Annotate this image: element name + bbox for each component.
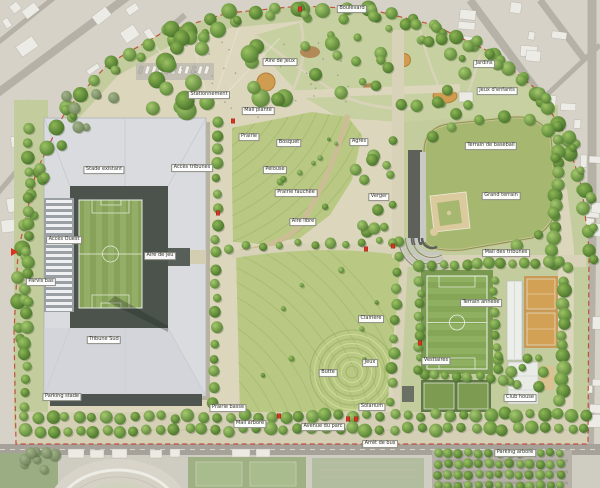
tree bbox=[413, 276, 423, 286]
tree bbox=[87, 413, 96, 422]
tree bbox=[23, 362, 32, 371]
tree bbox=[462, 372, 472, 382]
tree bbox=[299, 283, 303, 287]
tree bbox=[294, 239, 301, 246]
sports-cluster bbox=[402, 270, 558, 412]
tree bbox=[209, 306, 221, 318]
tree bbox=[580, 410, 592, 422]
tree bbox=[144, 410, 155, 421]
tree bbox=[464, 448, 472, 456]
tree bbox=[346, 421, 358, 433]
tree bbox=[525, 409, 534, 418]
tree bbox=[484, 449, 492, 457]
tree bbox=[556, 459, 565, 468]
tree bbox=[123, 48, 136, 61]
label-terrain-annexe: Terrain annexe bbox=[460, 299, 502, 307]
tree bbox=[281, 306, 286, 311]
tree bbox=[23, 297, 33, 307]
tree bbox=[513, 422, 524, 433]
tree bbox=[394, 252, 403, 261]
tree bbox=[306, 410, 319, 423]
tree bbox=[212, 220, 224, 232]
tree bbox=[423, 36, 434, 47]
tree bbox=[443, 448, 453, 458]
tree bbox=[357, 220, 368, 231]
tree bbox=[26, 447, 37, 458]
city-building bbox=[580, 155, 587, 168]
tree bbox=[386, 398, 395, 407]
tree bbox=[195, 42, 209, 56]
tree bbox=[474, 115, 484, 125]
tree bbox=[212, 413, 222, 423]
tree bbox=[128, 426, 138, 436]
tree bbox=[440, 260, 448, 268]
tree bbox=[404, 410, 413, 419]
label-terrain-baseball: Terrain de baseball bbox=[465, 142, 517, 150]
small-hut bbox=[402, 386, 414, 402]
tree bbox=[472, 424, 482, 434]
city-building bbox=[458, 21, 475, 30]
tree bbox=[25, 178, 35, 188]
tree bbox=[545, 470, 553, 478]
grandstand-upper bbox=[420, 152, 426, 242]
tree bbox=[556, 331, 566, 341]
tree bbox=[20, 388, 29, 397]
tree bbox=[463, 458, 473, 468]
label-acces-ouest: Accès Ouest bbox=[46, 236, 82, 244]
tree bbox=[19, 412, 29, 422]
tree bbox=[498, 375, 509, 386]
label-bosquet: Bosquet bbox=[276, 139, 301, 147]
tree bbox=[210, 425, 220, 435]
tree bbox=[100, 411, 113, 424]
tree bbox=[358, 239, 366, 247]
label-prairie-fauchee: Prairie fauchée bbox=[275, 189, 318, 197]
tree bbox=[376, 55, 385, 64]
tree bbox=[41, 447, 52, 458]
tree bbox=[577, 166, 585, 174]
tree bbox=[288, 355, 294, 361]
tree bbox=[143, 38, 155, 50]
tree bbox=[86, 426, 98, 438]
tree bbox=[48, 426, 60, 438]
tree bbox=[267, 412, 278, 423]
tree bbox=[350, 164, 362, 176]
tree bbox=[491, 331, 500, 340]
entrance-marker bbox=[364, 247, 368, 251]
tree bbox=[558, 318, 570, 330]
label-verger: Verger bbox=[368, 193, 389, 201]
tree bbox=[493, 364, 503, 374]
tree bbox=[524, 459, 534, 469]
tree bbox=[553, 394, 565, 406]
tree bbox=[538, 408, 552, 422]
tree bbox=[462, 259, 473, 270]
tree bbox=[210, 340, 219, 349]
tree bbox=[541, 123, 555, 137]
tree bbox=[359, 78, 366, 85]
tree bbox=[332, 51, 342, 61]
tree bbox=[473, 449, 482, 458]
label-butte: Butte bbox=[319, 369, 338, 377]
tree bbox=[11, 271, 24, 284]
tree bbox=[410, 100, 422, 112]
label-arret-bus: Arrêt de bus bbox=[362, 440, 398, 448]
tree bbox=[318, 408, 331, 421]
east-apron bbox=[190, 250, 206, 264]
label-mail-tribunes: Mail des tribunes bbox=[482, 249, 530, 257]
tree bbox=[415, 331, 425, 341]
label-mail-plante: Mail planté bbox=[242, 107, 275, 115]
tree bbox=[63, 427, 72, 436]
tree bbox=[471, 35, 482, 46]
tree bbox=[249, 6, 263, 20]
tree bbox=[213, 294, 221, 302]
tree bbox=[552, 178, 564, 190]
tree bbox=[493, 343, 501, 351]
tree bbox=[443, 470, 452, 479]
tree bbox=[562, 130, 576, 144]
tree bbox=[495, 258, 506, 269]
tree bbox=[19, 423, 33, 437]
tree bbox=[444, 47, 457, 60]
tree bbox=[21, 321, 34, 334]
tree bbox=[130, 412, 140, 422]
city-building bbox=[589, 156, 600, 164]
tree bbox=[484, 408, 498, 422]
tree bbox=[436, 33, 448, 45]
label-stade-existant: Stade existant bbox=[83, 166, 124, 174]
tree bbox=[322, 203, 328, 209]
tree bbox=[388, 378, 398, 388]
tree bbox=[508, 259, 517, 268]
tree bbox=[390, 315, 400, 325]
label-stationnement: Stationnement bbox=[188, 91, 230, 99]
tree bbox=[449, 30, 463, 44]
tree bbox=[427, 260, 437, 270]
mini-pitch bbox=[424, 383, 454, 409]
tree bbox=[325, 238, 336, 249]
tree bbox=[211, 157, 223, 169]
label-tribune-sud: Tribune Sud bbox=[87, 336, 121, 344]
tree bbox=[418, 423, 427, 432]
tree bbox=[22, 256, 35, 269]
tree bbox=[57, 140, 67, 150]
tree bbox=[545, 244, 558, 257]
tree bbox=[483, 421, 497, 435]
tree bbox=[61, 91, 72, 102]
tree bbox=[453, 449, 462, 458]
tree bbox=[386, 170, 394, 178]
tree bbox=[359, 326, 364, 331]
tree bbox=[91, 89, 101, 99]
tree bbox=[212, 174, 220, 182]
tree bbox=[195, 423, 207, 435]
tree bbox=[213, 190, 222, 199]
tree bbox=[494, 351, 502, 359]
tree bbox=[300, 41, 310, 51]
tree bbox=[161, 57, 176, 72]
tree bbox=[586, 192, 596, 202]
tree bbox=[391, 284, 401, 294]
tree bbox=[311, 241, 319, 249]
tree bbox=[372, 204, 383, 215]
tree bbox=[212, 143, 223, 154]
tree bbox=[198, 412, 209, 423]
tree bbox=[103, 425, 113, 435]
tree bbox=[429, 424, 443, 438]
label-club-house: Club house bbox=[504, 394, 537, 402]
city-building bbox=[510, 2, 522, 14]
tree bbox=[49, 120, 65, 136]
tree bbox=[392, 268, 401, 277]
tree bbox=[376, 237, 383, 244]
tree bbox=[210, 22, 226, 38]
tree bbox=[156, 410, 165, 419]
tree bbox=[241, 45, 259, 63]
tree bbox=[396, 99, 407, 110]
tree bbox=[388, 347, 400, 359]
tree bbox=[76, 426, 86, 436]
tree bbox=[170, 41, 184, 55]
tree bbox=[375, 425, 384, 434]
tree bbox=[342, 241, 349, 248]
tree bbox=[413, 260, 425, 272]
tree bbox=[39, 141, 54, 156]
tree bbox=[359, 175, 369, 185]
tree bbox=[24, 167, 33, 176]
tree bbox=[505, 469, 514, 478]
tree bbox=[88, 75, 99, 86]
tree bbox=[454, 460, 463, 469]
tree bbox=[413, 365, 422, 374]
tree bbox=[515, 471, 523, 479]
tree bbox=[505, 366, 517, 378]
tree bbox=[385, 7, 397, 19]
tree bbox=[35, 426, 47, 438]
tree bbox=[391, 299, 402, 310]
tree bbox=[430, 408, 441, 419]
tree bbox=[156, 425, 166, 435]
tree bbox=[441, 371, 449, 379]
label-grand-terrain: Grand terrain bbox=[482, 192, 521, 200]
tree bbox=[434, 460, 443, 469]
tree bbox=[114, 426, 126, 438]
tree bbox=[23, 138, 32, 147]
tree bbox=[382, 62, 393, 73]
tree bbox=[459, 410, 468, 419]
tree bbox=[333, 409, 343, 419]
tree bbox=[569, 425, 578, 434]
tree bbox=[498, 110, 511, 123]
tree bbox=[198, 32, 209, 43]
tree bbox=[224, 244, 233, 253]
tree bbox=[362, 410, 371, 419]
tree bbox=[483, 257, 495, 269]
tree bbox=[442, 85, 453, 96]
city-building bbox=[525, 50, 541, 62]
tree bbox=[450, 261, 460, 271]
tree bbox=[40, 172, 50, 182]
tree bbox=[474, 459, 483, 468]
tree bbox=[546, 448, 554, 456]
tree bbox=[533, 381, 544, 392]
tree bbox=[417, 290, 425, 298]
city-building bbox=[592, 317, 600, 330]
tree bbox=[21, 247, 31, 257]
tree bbox=[21, 375, 30, 384]
tree bbox=[565, 409, 579, 423]
tree bbox=[447, 122, 457, 132]
tree bbox=[541, 93, 551, 103]
tree bbox=[297, 170, 303, 176]
tree bbox=[315, 3, 330, 18]
tree bbox=[375, 412, 384, 421]
tree bbox=[429, 370, 439, 380]
tree bbox=[23, 206, 34, 217]
tree bbox=[311, 161, 316, 166]
tree bbox=[114, 413, 126, 425]
tree bbox=[458, 67, 471, 80]
tree bbox=[543, 256, 555, 268]
tree bbox=[554, 372, 568, 386]
tree bbox=[23, 123, 34, 134]
tree bbox=[351, 56, 361, 66]
tree bbox=[210, 355, 219, 364]
pitchers-mound bbox=[447, 211, 451, 215]
tree bbox=[22, 218, 34, 230]
tree bbox=[380, 223, 389, 232]
tree bbox=[212, 117, 223, 128]
tree bbox=[210, 246, 221, 257]
tree bbox=[516, 460, 524, 468]
tree bbox=[569, 144, 577, 152]
tree bbox=[20, 307, 32, 319]
tree bbox=[18, 348, 30, 360]
tree bbox=[504, 458, 514, 468]
tree bbox=[576, 201, 590, 215]
entrance-marker bbox=[418, 341, 422, 345]
label-solarium: Solarium bbox=[358, 403, 385, 411]
tree bbox=[385, 25, 392, 32]
label-parvis-bas: Parvis bas bbox=[26, 278, 56, 286]
tree bbox=[212, 131, 223, 142]
tree bbox=[108, 92, 119, 103]
tree bbox=[325, 36, 340, 51]
tree bbox=[136, 52, 145, 61]
tree bbox=[548, 207, 559, 218]
tree bbox=[459, 55, 466, 62]
entrance-marker bbox=[298, 7, 302, 11]
tree bbox=[490, 319, 501, 330]
tree bbox=[556, 449, 564, 457]
tree bbox=[554, 256, 565, 267]
tree bbox=[589, 255, 598, 264]
tree bbox=[450, 108, 462, 120]
tree bbox=[485, 471, 493, 479]
label-acces-tribunes: Accès tribunes bbox=[171, 164, 213, 172]
tree bbox=[390, 409, 400, 419]
label-parking-arbore: Parking arboré bbox=[494, 449, 536, 457]
city-building bbox=[561, 103, 576, 111]
tree bbox=[185, 74, 202, 91]
tree bbox=[210, 265, 221, 276]
label-aire-jeux-ouest: Aire de jeux bbox=[263, 58, 298, 66]
label-prairie-basse: Prairie basse bbox=[209, 404, 246, 412]
tree bbox=[366, 154, 378, 166]
tree bbox=[463, 100, 473, 110]
label-jeux: Jeux bbox=[362, 359, 378, 367]
tree bbox=[23, 192, 34, 203]
tree bbox=[523, 353, 533, 363]
tree bbox=[579, 424, 588, 433]
tree bbox=[368, 222, 380, 234]
city-building bbox=[459, 9, 476, 20]
tree bbox=[280, 176, 286, 182]
tree bbox=[385, 362, 397, 374]
label-jardins: Jardins bbox=[473, 60, 495, 68]
tree bbox=[293, 411, 304, 422]
mini-pitch bbox=[458, 383, 488, 409]
city-building bbox=[590, 404, 600, 413]
city-building bbox=[574, 120, 581, 129]
tree bbox=[471, 258, 482, 269]
tree bbox=[540, 422, 551, 433]
tree bbox=[538, 367, 549, 378]
tree bbox=[469, 409, 482, 422]
tree bbox=[301, 10, 309, 18]
tree bbox=[371, 80, 382, 91]
tree bbox=[242, 241, 251, 250]
entrance-marker bbox=[277, 414, 281, 418]
tree bbox=[334, 86, 347, 99]
label-agres: Agrès bbox=[349, 138, 368, 146]
tree bbox=[552, 408, 563, 419]
tree bbox=[509, 409, 523, 423]
tree bbox=[211, 321, 223, 333]
tree bbox=[464, 471, 473, 480]
city-building bbox=[592, 379, 600, 386]
tree bbox=[358, 424, 372, 438]
tree bbox=[338, 14, 348, 24]
tree bbox=[221, 3, 236, 18]
masterplan-canvas: Stade existantAccès tribunesAire de jeuT… bbox=[0, 0, 600, 488]
tree bbox=[110, 65, 119, 74]
label-clairiere: Clairière bbox=[358, 315, 384, 323]
tree bbox=[536, 460, 545, 469]
tree bbox=[414, 312, 423, 321]
tree bbox=[444, 410, 456, 422]
tree bbox=[530, 259, 540, 269]
tree bbox=[276, 242, 283, 249]
tree bbox=[434, 448, 443, 457]
tree bbox=[210, 279, 220, 289]
tree bbox=[415, 298, 424, 307]
tree bbox=[159, 82, 173, 96]
tree bbox=[180, 408, 193, 421]
tree bbox=[353, 33, 361, 41]
tree bbox=[433, 471, 442, 480]
tree bbox=[525, 420, 538, 433]
label-boulevard: Boulevard bbox=[337, 5, 367, 13]
tree bbox=[368, 11, 379, 22]
tree bbox=[516, 74, 528, 86]
tree bbox=[208, 365, 219, 376]
label-mail-arbore: Mail arboré bbox=[233, 420, 266, 428]
tree bbox=[400, 19, 412, 31]
label-avenue-du-parc: Avenue du parc bbox=[301, 423, 345, 431]
tree bbox=[490, 308, 500, 318]
